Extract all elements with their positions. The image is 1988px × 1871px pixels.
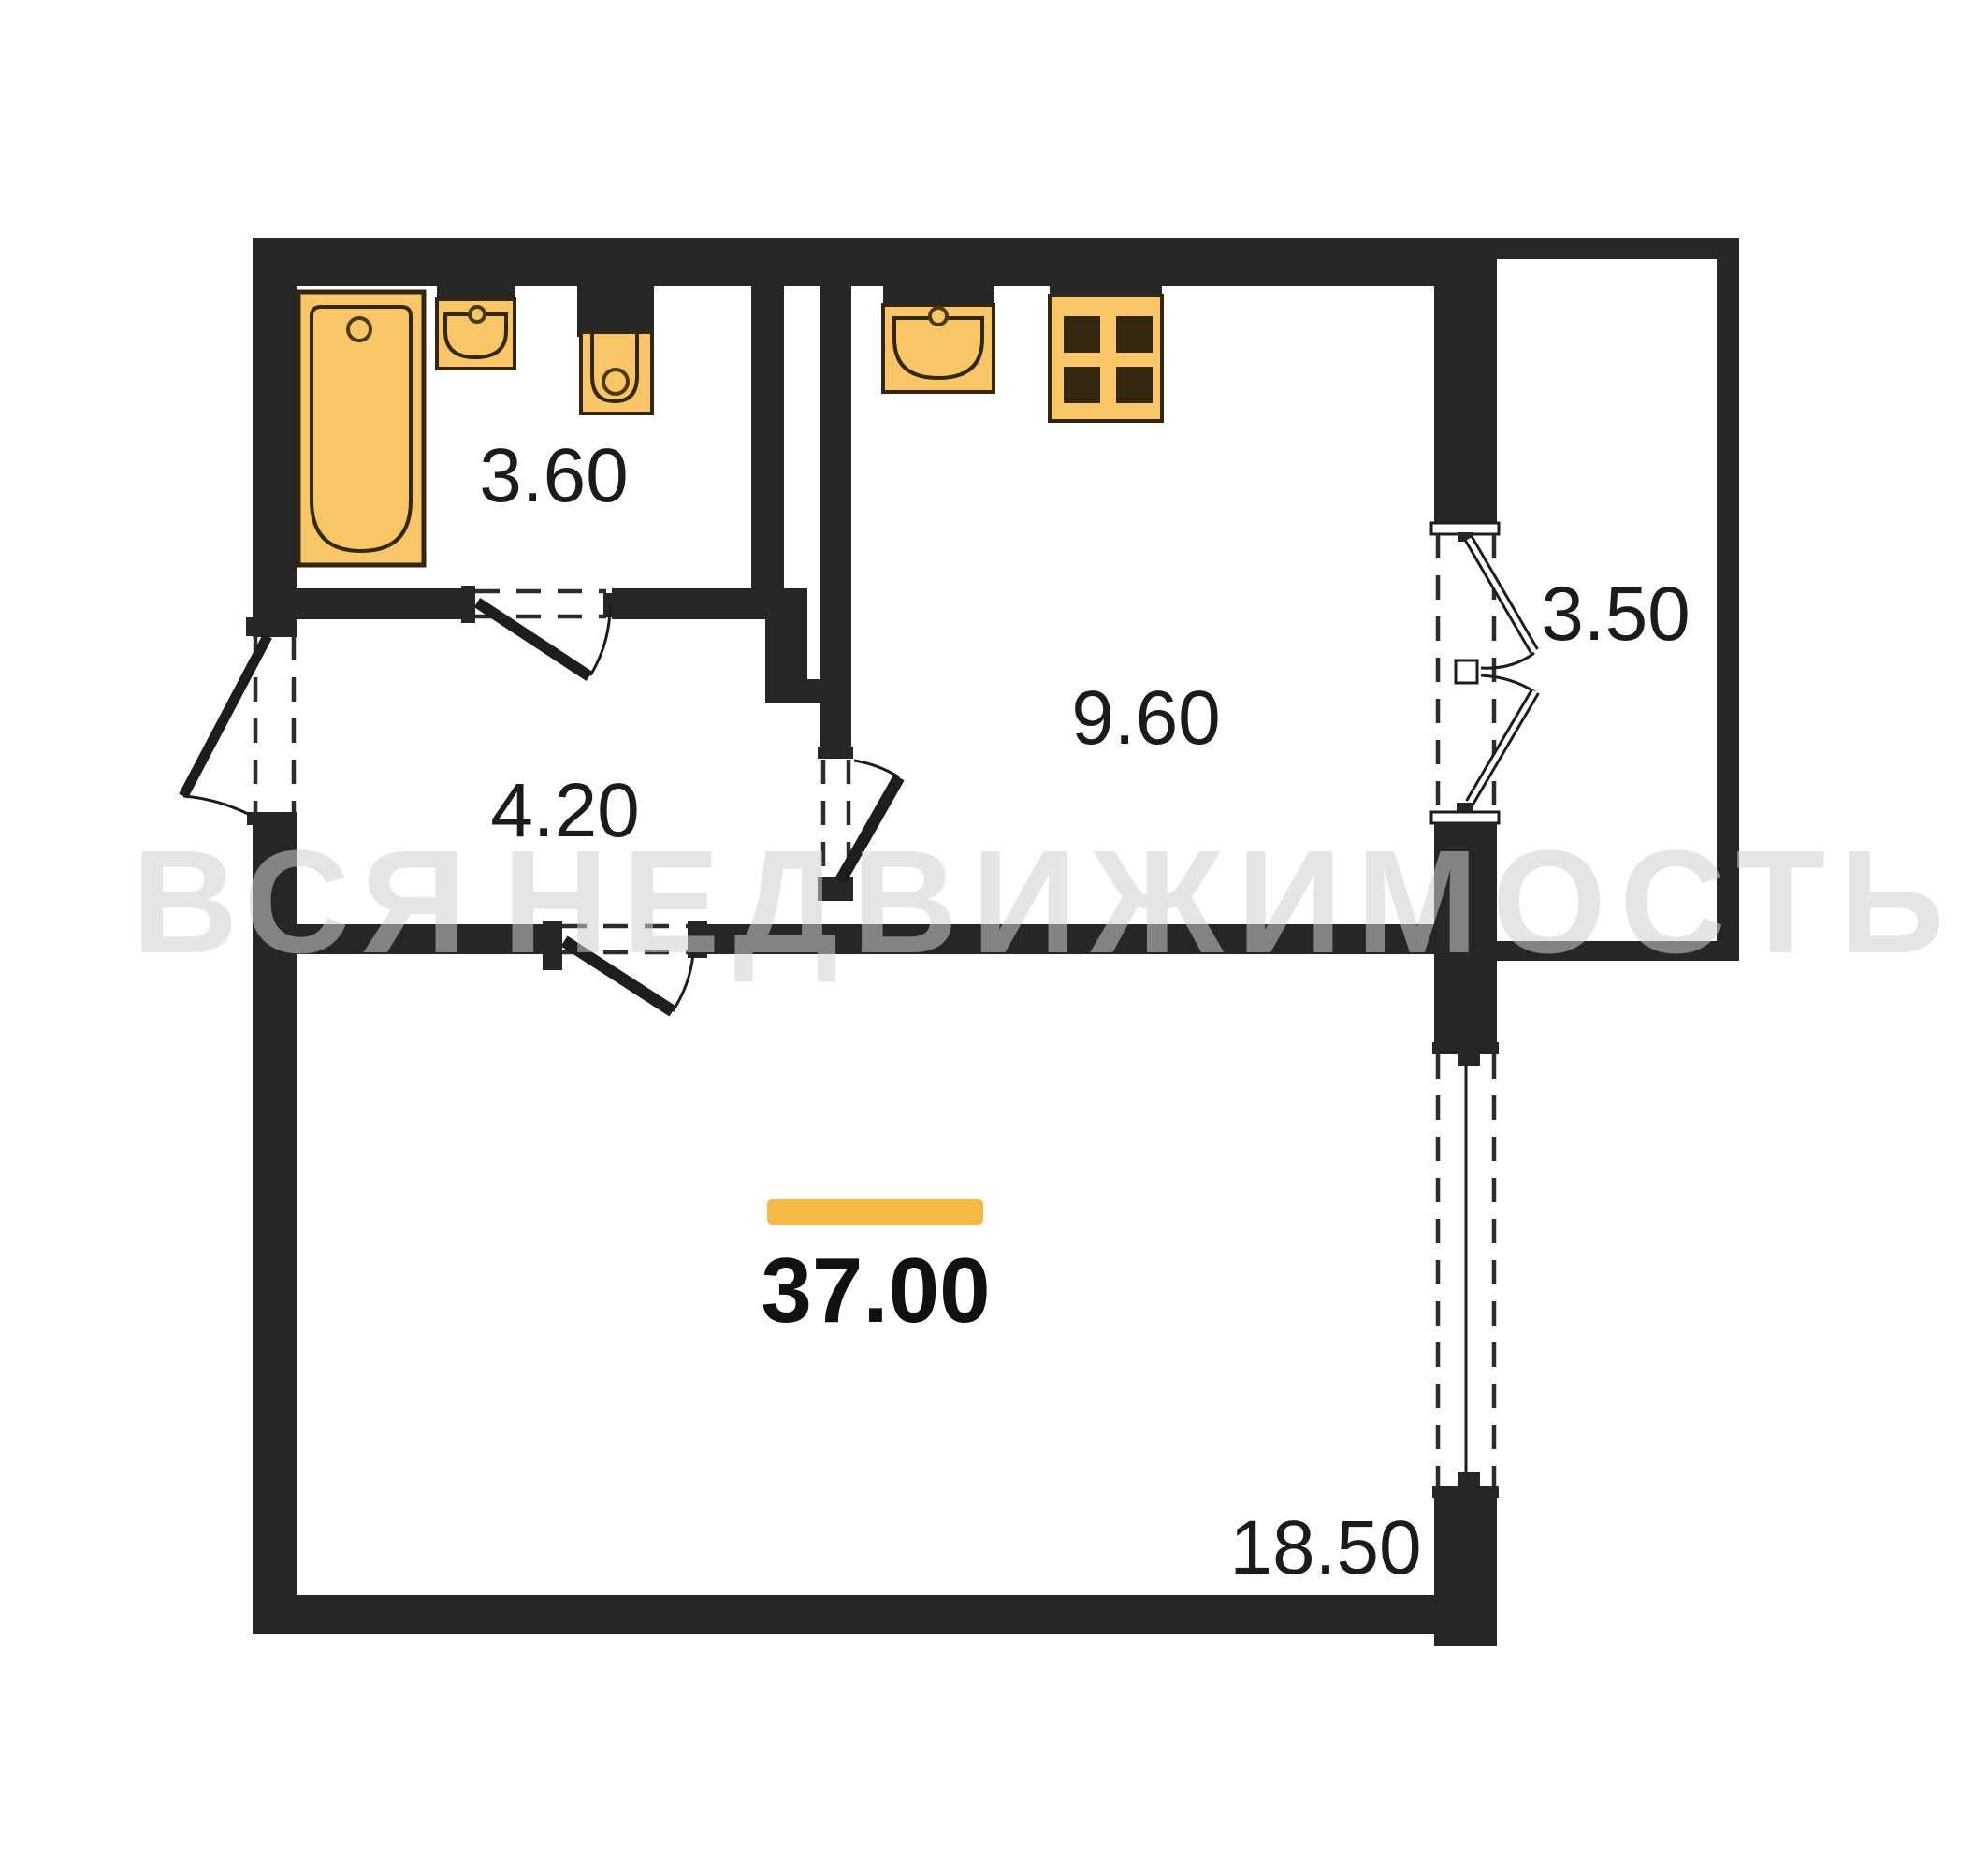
svg-text:9.60: 9.60: [1071, 675, 1221, 761]
svg-text:3.60: 3.60: [479, 433, 629, 518]
svg-text:3.50: 3.50: [1541, 572, 1691, 657]
svg-text:37.00: 37.00: [761, 1239, 990, 1342]
svg-text:18.50: 18.50: [1229, 1505, 1421, 1590]
svg-text:ВСЯ: ВСЯ: [132, 820, 478, 984]
svg-text:НЕДВИЖИМОСТЬ: НЕДВИЖИМОСТЬ: [502, 820, 1958, 984]
